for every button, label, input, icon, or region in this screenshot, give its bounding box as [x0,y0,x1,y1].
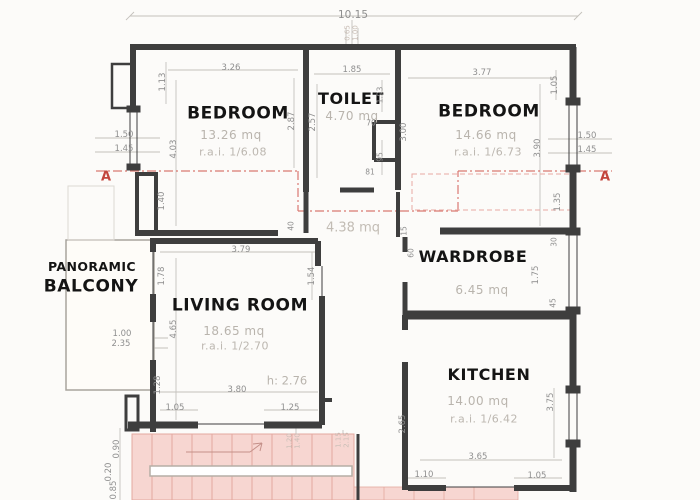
dim-hall-wall-b: 15 [400,226,408,236]
dim-toilet-right-top: 1.93 [376,87,384,104]
dim-right-window-a: 1.50 [578,132,597,141]
area-hall: 4.38 mq [326,222,380,235]
dim-wardrobe-right-top: 30 [550,237,558,247]
dim-wardrobe-right-bot: 45 [549,298,557,308]
dim-toilet-width: 1.85 [343,66,362,75]
dim-top-center-a: 0.65 [345,25,352,41]
dim-toilet-left: 2.57 [309,113,318,132]
room-label-toilet: TOILET [318,91,384,107]
dim-living-right-door: 1.54 [308,267,317,286]
area-wardrobe: 6.45 mq [455,284,508,296]
dim-left-window-b: 1.45 [115,145,134,154]
dim-stairs-c: 1.15 [336,432,343,448]
section-marker-a-right: A [600,171,610,184]
dim-stairs-d: 2.15 [344,432,351,448]
dim-bedroom-left-height: 4.03 [170,140,179,159]
dim-living-left: 4.65 [170,320,179,339]
room-label-balcony-line2: BALCONY [44,279,139,296]
area-kitchen: 14.00 mq [447,395,508,407]
dim-kitchen-bot-seg2: 1.05 [528,472,547,481]
dim-bedroom-right-top: 1.05 [551,76,560,95]
dim-balcony-door: 1.00 [113,330,132,339]
rai-kitchen: r.a.i. 1/6.42 [450,414,518,425]
dim-living-bot-left: 1.28 [154,376,163,395]
area-bedroom-left: 13.26 mq [200,129,261,141]
room-label-bedroom-left: BEDROOM [187,106,289,123]
dim-toilet-niche-height: 95 [376,152,384,162]
dim-hall-wall-a: 40 [287,221,295,231]
dim-stairs-b: 1.40 [295,433,302,449]
dim-left-window-a: 1.50 [115,131,134,140]
room-label-bedroom-right: BEDROOM [438,104,540,121]
dim-living-bot-width: 3.80 [228,386,247,395]
dim-living-bot-seg1: 1.05 [166,404,185,413]
floor-plan: BEDROOM 13.26 mq r.a.i. 1/6.08 TOILET 4.… [0,0,700,500]
floor-plan-drawing [0,0,700,500]
dim-living-width: 3.79 [232,246,251,255]
dim-right-window-b: 1.45 [578,146,597,155]
dim-stairs-a: 1.20 [287,433,294,449]
room-label-balcony-line1: PANORAMIC [48,261,136,274]
dim-outside-b: 0.20 [105,463,114,482]
dim-living-bot-seg2: 1.25 [281,404,300,413]
dim-outside-a: 0.90 [113,440,122,459]
stairs [132,434,518,500]
dim-bedroom-left-right: 2.87 [288,112,297,131]
room-label-living-room: LIVING ROOM [172,298,308,315]
dim-toilet-door: 81 [365,168,375,176]
dim-overall-width: 10.15 [338,10,368,21]
dim-top-center-b: 1.00 [353,25,360,41]
dim-toilet-niche-width: 70 [366,119,376,127]
area-living-room: 18.65 mq [203,325,264,337]
section-marker-a-left: A [101,171,111,184]
dim-kitchen-right: 3.75 [547,393,556,412]
area-bedroom-right: 14.66 mq [455,129,516,141]
dim-mid-wall: 3.00 [400,123,409,142]
rai-bedroom-left: r.a.i. 1/6.08 [199,147,267,158]
dim-bedroom-right-height: 3.90 [534,139,543,158]
dim-wardrobe-left: 60 [407,248,415,258]
rai-bedroom-right: r.a.i. 1/6.73 [454,147,522,158]
rai-living-room: r.a.i. 1/2.70 [201,341,269,352]
dim-right-jamb: 1.35 [554,193,563,212]
dim-wardrobe-window: 1.75 [532,266,541,285]
room-label-wardrobe: WARDROBE [419,249,528,265]
dim-bedroom-left-top: 1.13 [159,73,168,92]
ceiling-height-label: h: 2.76 [267,375,307,387]
dim-outside-c: 0.85 [110,481,119,500]
dim-kitchen-bot-width: 3.65 [469,453,488,462]
dim-bedroom-left-width: 3.26 [222,64,241,73]
dim-bedroom-right-width: 3.77 [473,69,492,78]
dim-kitchen-bot-seg1: 1.10 [415,471,434,480]
dim-kitchen-left: 2.65 [399,415,408,434]
room-label-kitchen: KITCHEN [448,367,531,383]
dim-balcony-width: 2.35 [112,340,131,349]
dim-living-left-top: 1.78 [158,267,167,286]
dim-left-jamb: 1.40 [158,192,167,211]
